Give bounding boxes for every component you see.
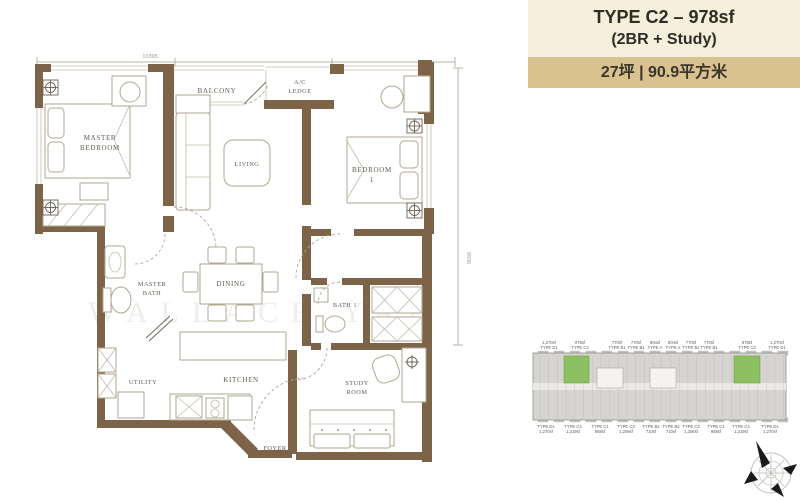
room-label-ac-ledge: A/C (294, 79, 306, 86)
key-plan-unit-label: 968sf (595, 429, 606, 434)
unit-config-line: (2BR + Study) (528, 29, 800, 51)
unit-type-title: TYPE C2 – 978sf (2BR + Study) (528, 0, 800, 57)
room-label-master-bath: MASTER (138, 281, 167, 288)
key-plan-unit-label: 710sf (646, 429, 657, 434)
key-plan-unit-label: TYPE C2 (571, 345, 589, 350)
svg-text:BATH: BATH (143, 290, 161, 297)
key-plan-unit-label: TYPE B1 (682, 345, 700, 350)
svg-text:ROOM: ROOM (347, 389, 368, 396)
dimension-top: 10395 (142, 54, 157, 60)
key-plan-unit-label: 710sf (666, 429, 677, 434)
room-label-study-room: STUDY (345, 380, 369, 387)
svg-text:LEDGE: LEDGE (288, 88, 311, 95)
title-card: TYPE C2 – 978sf (2BR + Study) 27坪 | 90.9… (528, 0, 800, 88)
svg-text:BEDROOM: BEDROOM (80, 144, 120, 152)
key-plan-unit-label: TYPE C2 (738, 345, 756, 350)
room-label-balcony: BALCONY (198, 87, 237, 95)
unit-type-line: TYPE C2 – 978sf (528, 5, 800, 29)
room-label-bath-1: BATH 1 (333, 302, 357, 309)
key-plan-unit-label: 1,270sf (539, 429, 554, 434)
room-label-dining: DINING (216, 280, 245, 288)
room-label-kitchen: KITCHEN (223, 376, 259, 384)
key-plan-unit-label: 1,206sf (619, 429, 634, 434)
compass-rose-icon (744, 441, 797, 497)
key-plan-unit-label: 1,270sf (763, 429, 778, 434)
room-label-master-bedroom: MASTER (84, 134, 117, 142)
unit-area-line: 27坪 | 90.9平方米 (528, 57, 800, 88)
key-plan-unit-label: TYPE A (648, 345, 663, 350)
key-plan-unit-label: TYPE D1 (768, 345, 786, 350)
key-plan-unit-label: TYPE B1 (700, 345, 718, 350)
key-plan-unit-label: TYPE A (666, 345, 681, 350)
room-label-bedroom-1: BEDROOM (352, 166, 392, 174)
key-plan-unit-label: TYPE B1 (608, 345, 626, 350)
key-plan-unit-label: 1,219sf (734, 429, 749, 434)
room-label-foyer: FOYER (263, 445, 286, 452)
svg-text:1: 1 (370, 176, 374, 184)
key-plan-unit-label: 1,219sf (566, 429, 581, 434)
key-plan-unit-label: TYPE B1 (627, 345, 645, 350)
key-plan-unit-label: 968sf (711, 429, 722, 434)
key-plan-unit-label: TYPE D1 (540, 345, 558, 350)
key-plan: 1,270sfTYPE D1978sfTYPE C2770sfTYPE B177… (500, 330, 800, 502)
room-label-utility: UTILITY (129, 379, 157, 386)
key-plan-unit-label: 1,206sf (684, 429, 699, 434)
dimension-right: 9936 (465, 252, 471, 264)
room-label-living: LIVING (235, 161, 260, 168)
